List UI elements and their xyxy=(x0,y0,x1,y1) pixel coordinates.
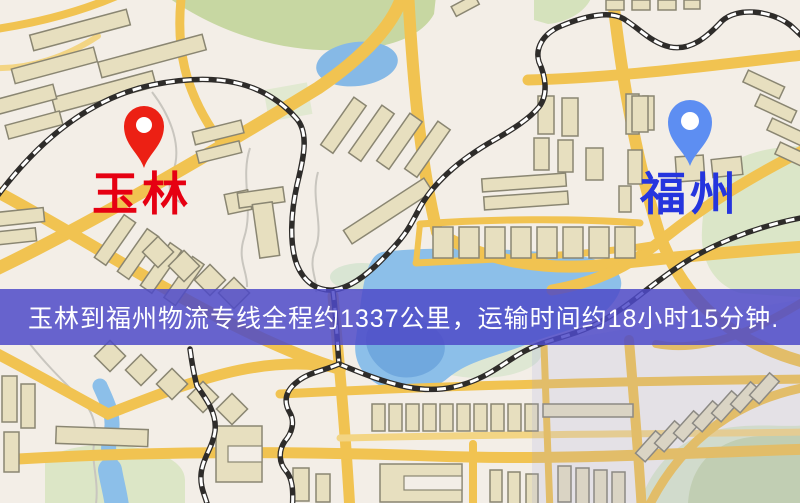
building-block xyxy=(658,0,676,10)
building-block xyxy=(423,404,436,431)
building-block xyxy=(537,227,557,258)
building-block xyxy=(589,227,609,258)
building-block xyxy=(534,138,549,170)
map-svg xyxy=(0,0,800,503)
origin-label: 玉林 xyxy=(92,172,192,218)
banner-text: 玉林到福州物流专线全程约1337公里，运输时间约18小时15分钟. xyxy=(0,299,779,335)
building-block xyxy=(511,227,531,258)
info-banner: 玉林到福州物流专线全程约1337公里，运输时间约18小时15分钟. xyxy=(0,289,800,345)
building-block xyxy=(457,404,470,431)
building-block xyxy=(433,227,453,258)
building-block xyxy=(632,0,650,10)
building-block xyxy=(558,140,573,172)
building-block xyxy=(490,470,502,502)
building-block xyxy=(606,0,624,10)
destination-label: 福州 xyxy=(640,172,740,218)
building-block xyxy=(2,376,17,422)
building-block xyxy=(563,227,583,258)
building-block xyxy=(459,227,479,258)
building-courtyard xyxy=(404,476,462,490)
building-block xyxy=(440,404,453,431)
building-block xyxy=(389,404,402,431)
building-block xyxy=(316,474,330,502)
building-block xyxy=(632,96,648,132)
building-block xyxy=(615,227,635,258)
building-block xyxy=(372,404,385,431)
road xyxy=(416,224,420,263)
building-courtyard xyxy=(228,446,262,462)
building-block xyxy=(406,404,419,431)
destination-pin-icon xyxy=(666,98,714,173)
building-block xyxy=(684,0,700,9)
building-block xyxy=(508,404,521,431)
building-block xyxy=(4,432,19,472)
building-block xyxy=(56,426,149,446)
map-image: 玉林 福州 玉林到福州物流专线全程约1337公里，运输时间约18小时15分钟. xyxy=(0,0,800,503)
building-block xyxy=(474,404,487,431)
building-block xyxy=(21,384,35,428)
building-block xyxy=(508,472,520,503)
building-block xyxy=(619,186,631,212)
river xyxy=(110,470,117,503)
origin-pin-icon xyxy=(122,104,166,175)
building-block xyxy=(586,148,603,180)
building-block xyxy=(562,98,578,136)
building-block xyxy=(485,227,505,258)
building-block xyxy=(491,404,504,431)
